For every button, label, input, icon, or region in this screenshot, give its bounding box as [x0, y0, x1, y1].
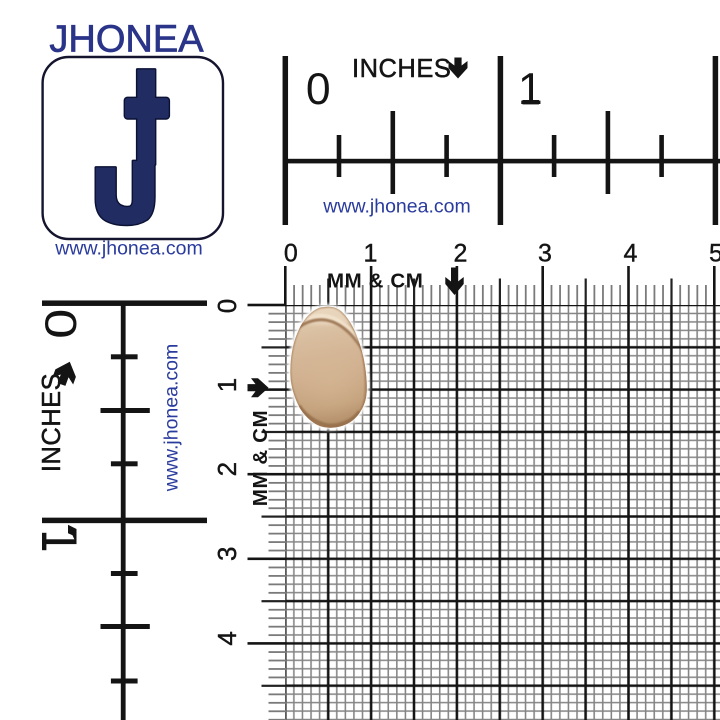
- svg-text:INCHES: INCHES: [38, 373, 66, 472]
- svg-text:1: 1: [364, 240, 378, 268]
- svg-text:2: 2: [454, 240, 468, 268]
- svg-text:1: 1: [212, 378, 242, 392]
- svg-text:0: 0: [284, 240, 298, 268]
- svg-text:1: 1: [518, 65, 543, 114]
- svg-text:MM & CM: MM & CM: [327, 270, 423, 293]
- svg-text:JHONEA: JHONEA: [49, 19, 204, 61]
- svg-text:www.jhonea.com: www.jhonea.com: [322, 196, 470, 218]
- svg-text:0: 0: [212, 299, 242, 313]
- svg-text:0: 0: [306, 65, 331, 114]
- svg-text:3: 3: [212, 547, 242, 561]
- svg-text:MM & CM: MM & CM: [249, 410, 272, 506]
- svg-text:4: 4: [624, 240, 638, 268]
- svg-text:INCHES: INCHES: [352, 55, 451, 83]
- svg-text:4: 4: [212, 631, 242, 645]
- svg-text:www.jhonea.com: www.jhonea.com: [161, 344, 183, 492]
- svg-text:www.jhonea.com: www.jhonea.com: [54, 238, 202, 260]
- svg-text:0: 0: [36, 309, 86, 339]
- svg-text:2: 2: [212, 462, 242, 476]
- svg-text:5: 5: [709, 240, 720, 268]
- svg-text:3: 3: [538, 240, 552, 268]
